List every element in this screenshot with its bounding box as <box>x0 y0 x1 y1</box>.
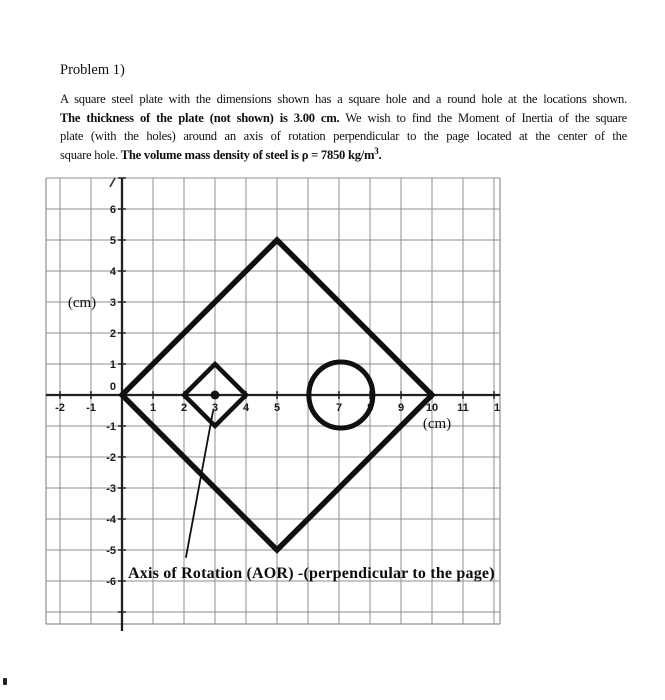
scan-speck-artifact <box>3 678 7 685</box>
x-axis-label: 2 <box>181 402 187 414</box>
y-axis-label: -1 <box>106 421 116 433</box>
x-axis-label: 5 <box>274 402 280 414</box>
x-axis-label: -2 <box>55 402 65 414</box>
aor-center-dot <box>211 391 220 400</box>
clipped-y-label-artifact <box>110 178 115 187</box>
x-axis-label: 9 <box>398 402 404 414</box>
y-axis-label: 5 <box>110 235 116 247</box>
scanned-problem-page: { "page": { "title": "Problem 1)", "para… <box>0 0 665 700</box>
y-axis-label: -2 <box>106 452 116 464</box>
x-axis-label: -1 <box>86 402 96 414</box>
x-axis-unit-label: (cm) <box>423 416 451 432</box>
y-axis-label: 0 <box>110 381 116 393</box>
y-axis-unit-label: (cm) <box>68 295 96 311</box>
y-axis-label: 4 <box>110 266 117 278</box>
x-axis-label: 11 <box>457 402 469 414</box>
x-axis-label: 1 <box>494 402 500 414</box>
y-axis-label: 2 <box>110 328 116 340</box>
x-axis-label: 1 <box>150 402 156 414</box>
y-axis-label: -4 <box>106 514 117 526</box>
y-axis-label: -3 <box>106 483 116 495</box>
aor-caption: Axis of Rotation (AOR) -(perpendicular t… <box>128 565 495 582</box>
x-axis-label: 7 <box>336 402 342 414</box>
y-axis-label: -5 <box>106 545 116 557</box>
problem-figure: -2-112345789101116543210-1-2-3-4-5-6(cm)… <box>0 0 665 700</box>
x-axis-label: 10 <box>426 402 438 414</box>
y-axis-label: -6 <box>106 576 116 588</box>
y-axis-label: 1 <box>110 359 116 371</box>
y-axis-label: 6 <box>110 204 116 216</box>
x-axis-label: 4 <box>243 402 250 414</box>
y-axis-label: 3 <box>110 297 116 309</box>
